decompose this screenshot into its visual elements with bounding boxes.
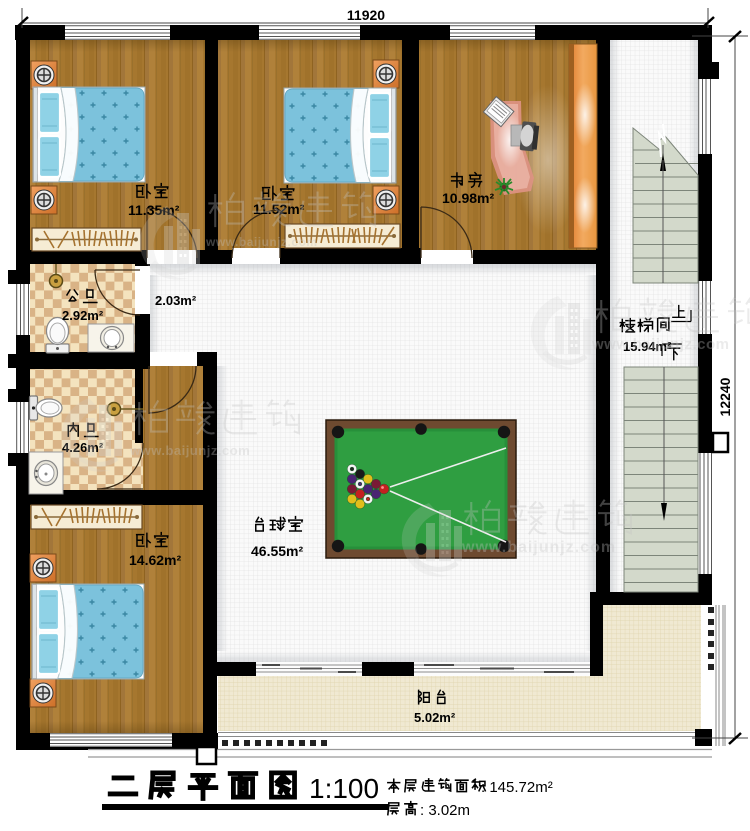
- svg-text:5.02m²: 5.02m²: [414, 710, 456, 725]
- svg-text:14.62m²: 14.62m²: [129, 552, 181, 568]
- svg-text:12240: 12240: [717, 377, 733, 416]
- svg-text:www.baijunjz.com: www.baijunjz.com: [461, 539, 616, 556]
- svg-text:10.98m²: 10.98m²: [442, 190, 494, 206]
- svg-text:www.baijunjz.com: www.baijunjz.com: [591, 336, 729, 353]
- svg-text:: 145.72m²: : 145.72m²: [481, 779, 553, 796]
- svg-text:www.baijunjz.com: www.baijunjz.com: [205, 235, 318, 249]
- svg-text:11920: 11920: [347, 7, 385, 23]
- svg-text:2.92m²: 2.92m²: [62, 308, 104, 323]
- svg-text:: 3.02m: : 3.02m: [420, 802, 470, 819]
- svg-text:1:100: 1:100: [309, 773, 379, 804]
- svg-text:2.03m²: 2.03m²: [155, 293, 197, 308]
- svg-text:www.baijunjz.com: www.baijunjz.com: [129, 443, 250, 458]
- svg-text:46.55m²: 46.55m²: [251, 543, 303, 559]
